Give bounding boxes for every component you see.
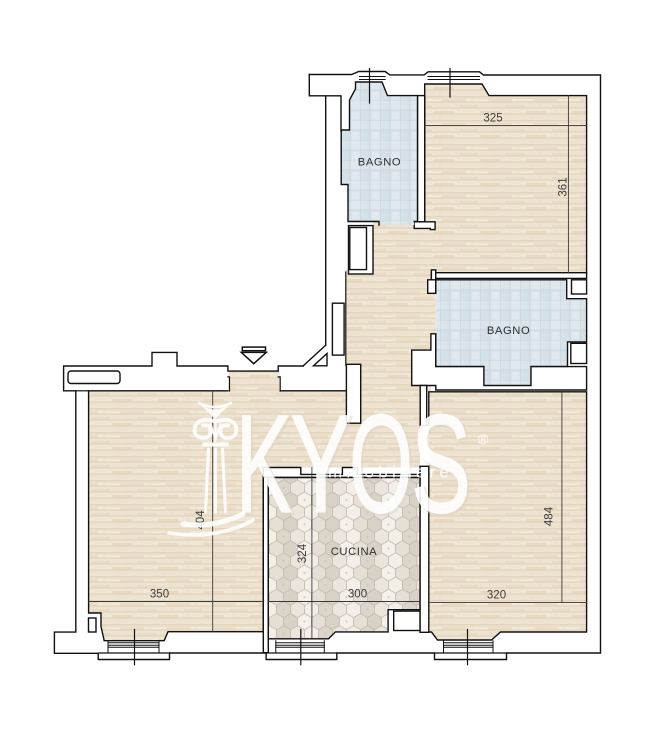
svg-text:325: 325 (483, 113, 502, 125)
svg-text:BAGNO: BAGNO (358, 157, 401, 169)
svg-text:324: 324 (297, 543, 309, 563)
svg-text:®: ® (478, 431, 489, 447)
svg-text:320: 320 (487, 590, 506, 602)
svg-text:BAGNO: BAGNO (487, 325, 530, 337)
svg-text:CUCINA: CUCINA (331, 546, 378, 558)
svg-text:484: 484 (544, 506, 556, 526)
svg-text:K: K (236, 385, 293, 542)
svg-text:361: 361 (558, 177, 570, 196)
svg-text:350: 350 (150, 589, 169, 601)
svg-text:300: 300 (348, 589, 367, 601)
svg-text:immobiliare: immobiliare (320, 463, 453, 482)
